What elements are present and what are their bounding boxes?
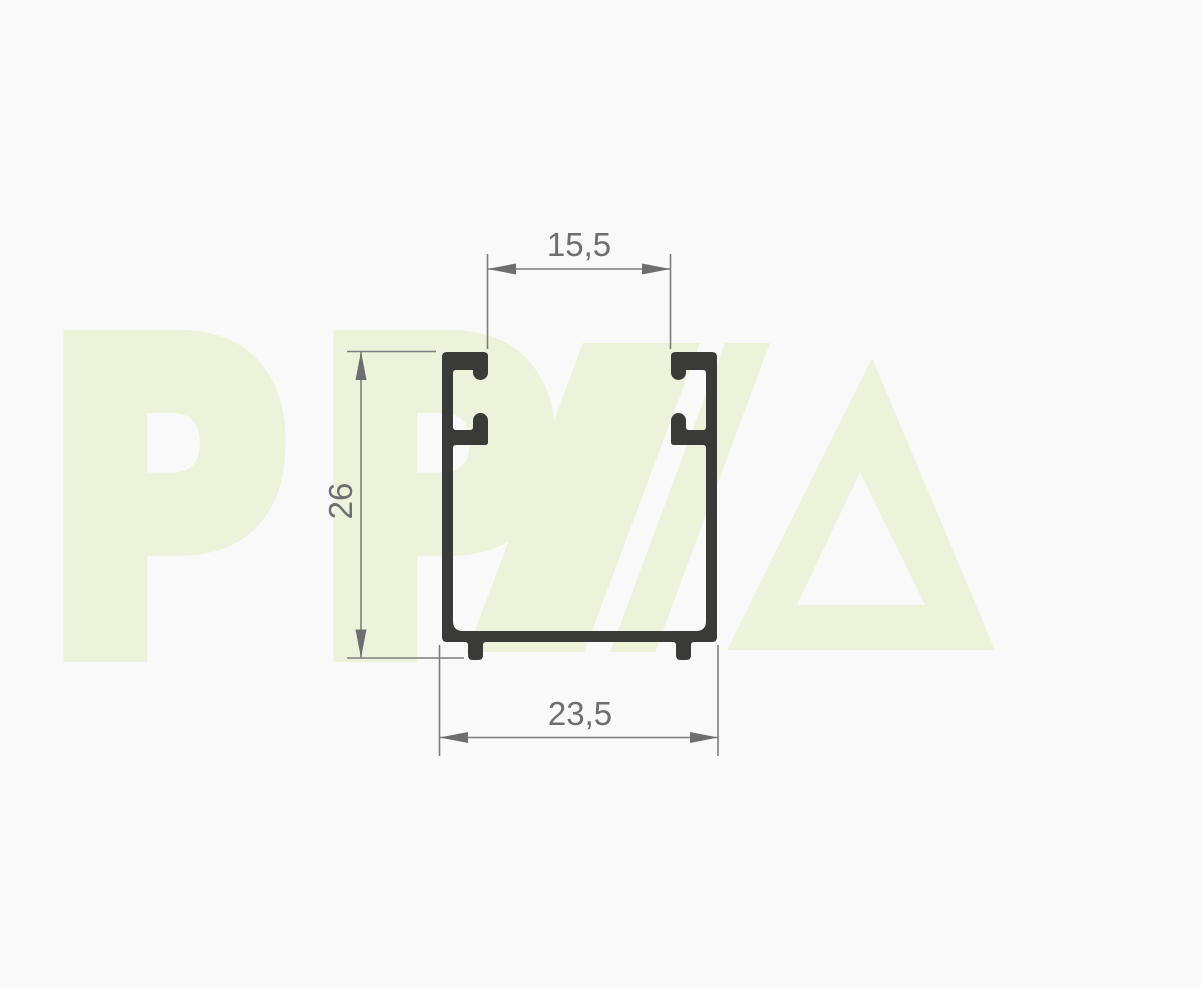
drawing-canvas: PP — [0, 0, 1201, 988]
dimension-label-top-width: 15,5 — [547, 226, 611, 263]
technical-drawing-svg: PP — [0, 0, 1201, 988]
dimension-label-height: 26 — [322, 483, 359, 520]
dimension-label-bottom-width: 23,5 — [548, 695, 612, 732]
watermark-letters-pp: PP — [43, 260, 583, 749]
